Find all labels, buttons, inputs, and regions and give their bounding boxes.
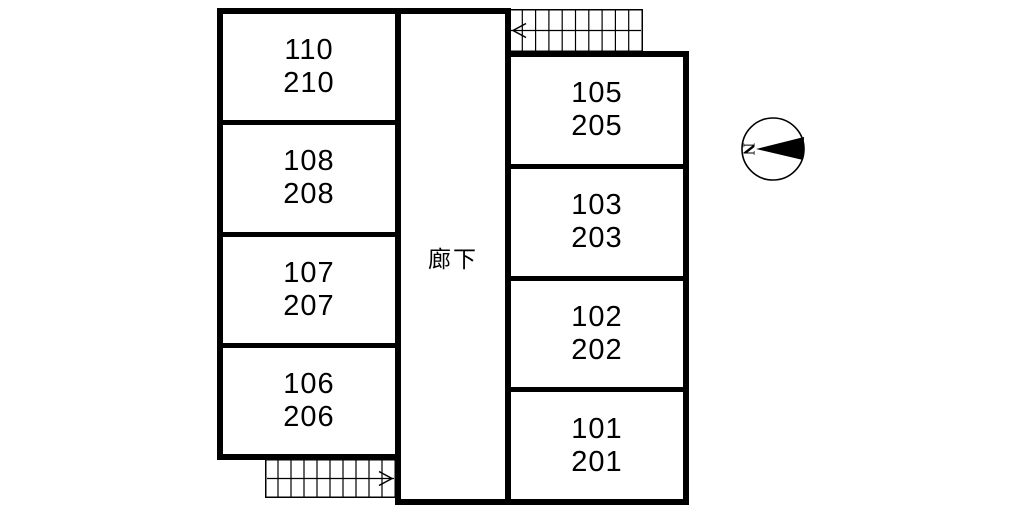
- room-number-2f: 208: [283, 178, 334, 211]
- room-number-2f: 206: [283, 401, 334, 434]
- room-number-1f: 107: [283, 257, 334, 290]
- room-number-2f: 205: [571, 110, 622, 143]
- floor-plan: 廊下 110 210 108 208 107 207 106 206 105 2…: [0, 0, 1024, 512]
- room-101-201: 101 201: [511, 387, 683, 499]
- room-number-2f: 203: [571, 222, 622, 255]
- room-number-1f: 103: [571, 189, 622, 222]
- room-number-1f: 101: [571, 413, 622, 446]
- room-number-1f: 102: [571, 301, 622, 334]
- compass-icon: N: [740, 115, 808, 188]
- room-number-2f: 207: [283, 290, 334, 323]
- compass-north-label: N: [740, 143, 759, 156]
- room-block-right: 105 205 103 203 102 202 101 201: [505, 51, 689, 505]
- staircase-bottom-left: [265, 459, 396, 503]
- room-number-1f: 108: [283, 145, 334, 178]
- room-number-1f: 105: [571, 77, 622, 110]
- room-108-208: 108 208: [223, 120, 395, 231]
- room-107-207: 107 207: [223, 232, 395, 343]
- room-number-1f: 110: [284, 34, 333, 67]
- room-106-206: 106 206: [223, 343, 395, 454]
- corridor: 廊下: [395, 8, 511, 505]
- room-102-202: 102 202: [511, 276, 683, 388]
- room-105-205: 105 205: [511, 57, 683, 164]
- room-103-203: 103 203: [511, 164, 683, 276]
- corridor-label: 廊下: [428, 240, 478, 274]
- room-number-2f: 210: [283, 67, 334, 100]
- staircase-top-right: [509, 9, 643, 57]
- room-block-left: 110 210 108 208 107 207 106 206: [217, 8, 401, 460]
- room-number-2f: 202: [571, 334, 622, 367]
- room-number-2f: 201: [571, 446, 622, 479]
- room-number-1f: 106: [283, 368, 334, 401]
- room-110-210: 110 210: [223, 14, 395, 120]
